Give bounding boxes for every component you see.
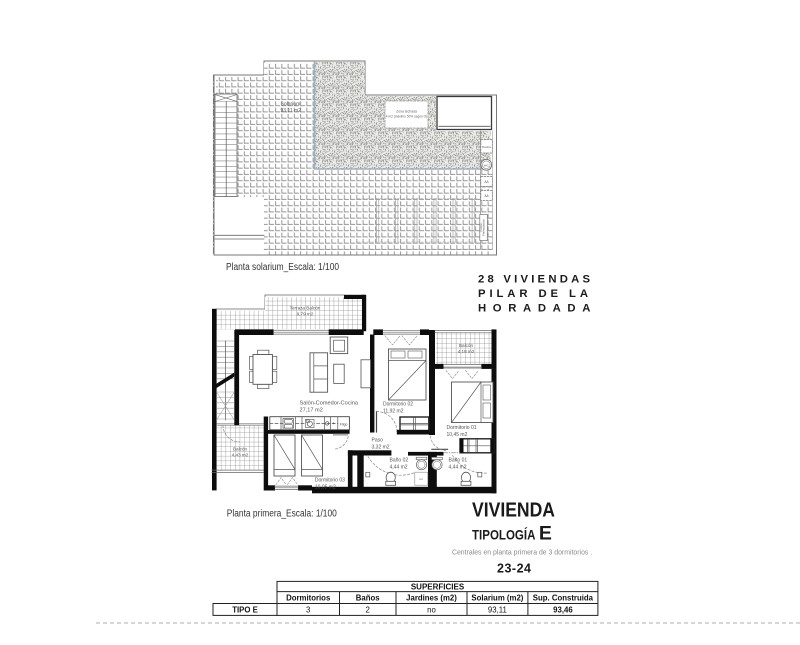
svg-text:Paso: Paso [372, 438, 384, 444]
svg-text:Planta primera_Escala: 1/100: Planta primera_Escala: 1/100 [227, 509, 337, 520]
svg-text:11,92 m2: 11,92 m2 [383, 409, 404, 415]
svg-text:93,11 m2: 93,11 m2 [281, 108, 302, 114]
svg-text:10,45 m2: 10,45 m2 [447, 432, 468, 438]
svg-text:WC: WC [484, 163, 490, 167]
svg-text:Frigo: Frigo [340, 423, 348, 427]
svg-text:4 m2 (máximo 50% según O): 4 m2 (máximo 50% según O) [386, 114, 427, 118]
svg-text:Cocina: Cocina [479, 223, 483, 232]
svg-text:Solarium (m2): Solarium (m2) [471, 594, 523, 603]
svg-text:no: no [427, 605, 436, 614]
svg-text:4,44 m2: 4,44 m2 [449, 465, 467, 471]
svg-text:23-24: 23-24 [497, 562, 531, 576]
svg-text:Baños: Baños [356, 594, 380, 603]
svg-text:Dormitorio 02: Dormitorio 02 [383, 402, 413, 408]
svg-text:lav: lav [419, 477, 423, 481]
svg-text:27,17 m2: 27,17 m2 [300, 408, 323, 414]
svg-text:Dormitorio 03: Dormitorio 03 [315, 478, 345, 484]
svg-text:4,44 m2: 4,44 m2 [390, 465, 408, 471]
svg-text:Balcón: Balcón [233, 447, 247, 452]
svg-text:Planta solarium_Escala: 1/100: Planta solarium_Escala: 1/100 [226, 262, 339, 273]
svg-text:Dormitorio 01: Dormitorio 01 [447, 425, 477, 431]
svg-text:4,43 m2: 4,43 m2 [232, 453, 249, 458]
svg-text:Balcón: Balcón [459, 343, 473, 348]
svg-text:3: 3 [306, 605, 310, 614]
svg-text:SUPERFICIES: SUPERFICIES [411, 583, 465, 592]
svg-text:TIPO E: TIPO E [232, 605, 258, 614]
svg-text:Baño 02: Baño 02 [390, 458, 409, 464]
svg-text:Baño 01: Baño 01 [449, 458, 468, 464]
svg-text:93,11: 93,11 [488, 605, 507, 614]
svg-text:Dormitorios: Dormitorios [286, 594, 331, 603]
svg-text:4,18 m2: 4,18 m2 [458, 349, 475, 354]
svg-text:93,46: 93,46 [553, 605, 573, 614]
svg-text:Zona techada: Zona techada [396, 110, 417, 114]
svg-text:3,32 m2: 3,32 m2 [372, 445, 390, 451]
svg-text:Sup. Construida: Sup. Construida [533, 594, 594, 603]
svg-text:Jardines (m2): Jardines (m2) [406, 594, 457, 603]
svg-text:VIVIENDA: VIVIENDA [472, 500, 555, 522]
svg-text:Ducha: Ducha [482, 145, 491, 149]
svg-text:Salón-Comedor-Cocina: Salón-Comedor-Cocina [300, 401, 359, 407]
svg-text:9,79 m2: 9,79 m2 [297, 312, 314, 317]
svg-text:Terraza Balcón: Terraza Balcón [290, 306, 321, 311]
svg-text:Centrales en planta primera de: Centrales en planta primera de 3 dormito… [452, 550, 592, 557]
svg-text:10,05 m2: 10,05 m2 [315, 485, 336, 491]
svg-text:Solarium: Solarium [281, 102, 301, 108]
svg-text:2: 2 [366, 605, 370, 614]
